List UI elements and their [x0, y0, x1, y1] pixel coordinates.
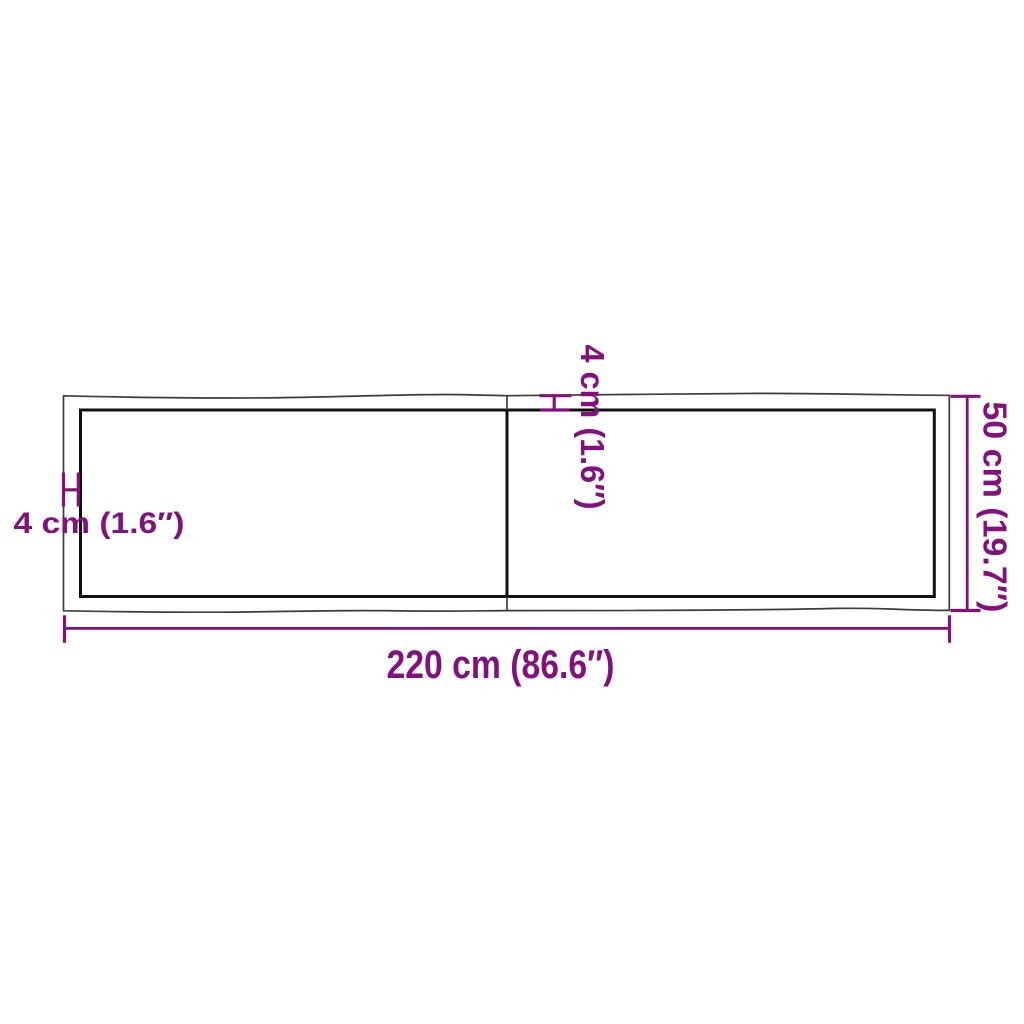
- svg-text:220 cm (86.6″): 220 cm (86.6″): [387, 643, 615, 687]
- svg-text:4 cm (1.6″): 4 cm (1.6″): [574, 345, 611, 510]
- svg-text:50 cm (19.7″): 50 cm (19.7″): [976, 401, 1013, 612]
- svg-text:4 cm (1.6″): 4 cm (1.6″): [14, 507, 185, 540]
